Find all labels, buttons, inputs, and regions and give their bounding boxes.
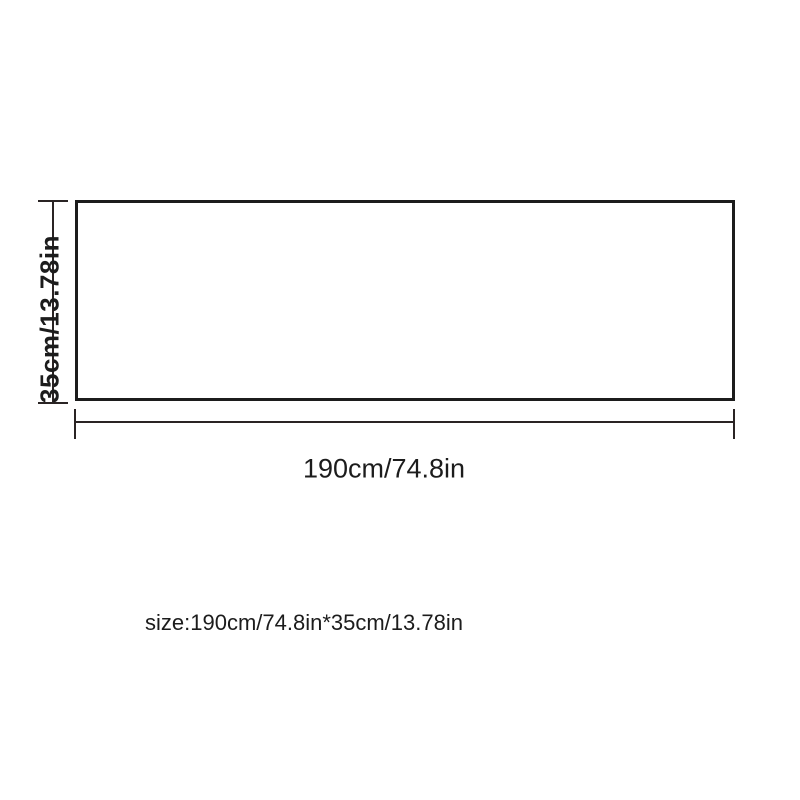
product-size-diagram: 35cm/13.78in 190cm/74.8in size:190cm/74.…: [0, 0, 800, 800]
height-label: 35cm/13.78in: [35, 235, 66, 403]
width-dimension-tick-right: [733, 409, 735, 439]
height-dimension-tick-top: [38, 200, 68, 202]
size-caption: size:190cm/74.8in*35cm/13.78in: [145, 610, 463, 636]
width-dimension-line: [74, 421, 734, 423]
width-label: 190cm/74.8in: [303, 454, 465, 485]
width-dimension-tick-left: [74, 409, 76, 439]
product-outline-rect: [75, 200, 735, 401]
